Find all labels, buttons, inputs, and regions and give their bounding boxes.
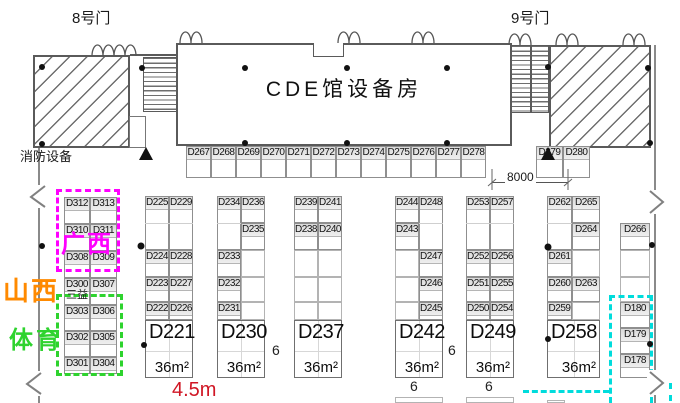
booth-label: D252 bbox=[467, 251, 489, 264]
empty-cell bbox=[395, 302, 419, 320]
booth-D264: D264 bbox=[572, 223, 600, 250]
booth-D273: D273 bbox=[336, 146, 361, 178]
booth-label: D234 bbox=[218, 197, 240, 210]
corridor-width-label: 6 bbox=[448, 342, 456, 358]
booth-D231: D231 bbox=[217, 302, 241, 320]
booth-label: D265 bbox=[573, 197, 599, 210]
booth-label: D275 bbox=[387, 147, 410, 160]
booth-label: D269 bbox=[237, 147, 260, 160]
booth-D241: D241 bbox=[318, 196, 342, 223]
booth-label: D263 bbox=[573, 278, 599, 291]
corridor-width-label: 6 bbox=[485, 378, 493, 394]
booth-D226: D226 bbox=[169, 302, 193, 320]
booth-label: D231 bbox=[218, 303, 240, 316]
booth-D247: D247 bbox=[419, 250, 443, 277]
empty-cell bbox=[318, 250, 342, 277]
booth-D263: D263 bbox=[572, 277, 600, 302]
booth-label: D266 bbox=[621, 224, 649, 237]
booth-label: D274 bbox=[362, 147, 385, 160]
empty-cell bbox=[395, 397, 443, 403]
booth-D279: D279 bbox=[536, 146, 563, 178]
empty-cell bbox=[395, 250, 419, 277]
empty-cell bbox=[620, 250, 650, 277]
booth-area: 36m² bbox=[405, 359, 439, 376]
highlight-line-cyan-horizontal bbox=[523, 390, 609, 393]
booth-D267: D267 bbox=[186, 146, 211, 178]
booth-D227: D227 bbox=[169, 277, 193, 302]
booth-label: D273 bbox=[337, 147, 360, 160]
booth-label: D250 bbox=[467, 303, 489, 316]
booth-label: D242 bbox=[399, 321, 445, 344]
booth-D275: D275 bbox=[386, 146, 411, 178]
booth-D254: D254 bbox=[490, 302, 514, 320]
region-label-guangxi: 广西 bbox=[61, 224, 113, 259]
booth-D228: D228 bbox=[169, 250, 193, 277]
booth-D271: D271 bbox=[286, 146, 311, 178]
fire-equipment-label: 消防设备 bbox=[20, 146, 72, 165]
empty-cell bbox=[294, 250, 318, 277]
booth-D233: D233 bbox=[217, 250, 241, 277]
booth-label: D249 bbox=[470, 321, 516, 344]
booth-label: D254 bbox=[491, 303, 513, 316]
booth-label: D272 bbox=[312, 147, 335, 160]
booth-D260: D260 bbox=[547, 277, 572, 302]
booth-label: D267 bbox=[187, 147, 210, 160]
cell-divider bbox=[145, 223, 193, 224]
booth-D266: D266 bbox=[620, 223, 650, 250]
booth-label: D264 bbox=[573, 224, 599, 237]
booth-D272: D272 bbox=[311, 146, 336, 178]
booth-label: D221 bbox=[149, 321, 195, 344]
booth-D255: D255 bbox=[490, 277, 514, 302]
dimension-value: 8000 bbox=[505, 170, 536, 184]
booth-D259: D259 bbox=[547, 302, 572, 320]
region-label-shanxi: 山西 bbox=[3, 271, 59, 308]
booth-D244: D244 bbox=[395, 196, 419, 223]
booth-D269: D269 bbox=[236, 146, 261, 178]
booth-label: D237 bbox=[298, 321, 344, 344]
company-label-sanyi: 三益 bbox=[66, 286, 88, 302]
booth-D232: D232 bbox=[217, 277, 241, 302]
booth-D258: D25836m² bbox=[547, 320, 600, 378]
booth-D265: D265 bbox=[572, 196, 600, 223]
booth-label: D278 bbox=[462, 147, 485, 160]
booth-label: D230 bbox=[221, 321, 267, 344]
booth-label: D255 bbox=[491, 278, 513, 291]
booth-D238: D238 bbox=[294, 223, 318, 250]
cell-divider bbox=[466, 223, 514, 224]
booth-label: D240 bbox=[319, 224, 341, 237]
highlight-line-cyan-vertical bbox=[669, 383, 672, 401]
booth-area: 36m² bbox=[304, 359, 338, 376]
booth-D223: D223 bbox=[145, 277, 169, 302]
booth-label: D247 bbox=[420, 251, 442, 264]
booth-label: D270 bbox=[262, 147, 285, 160]
booth-D251: D251 bbox=[466, 277, 490, 302]
booth-area: 36m² bbox=[227, 359, 261, 376]
booth-label: D228 bbox=[170, 251, 192, 264]
booth-D240: D240 bbox=[318, 223, 342, 250]
booth-label: D245 bbox=[420, 303, 442, 316]
booth-D278: D278 bbox=[461, 146, 486, 178]
booth-D250: D250 bbox=[466, 302, 490, 320]
booth-D222: D222 bbox=[145, 302, 169, 320]
cell-divider bbox=[217, 223, 241, 224]
booth-label: D225 bbox=[146, 197, 168, 210]
booth-label: D307 bbox=[91, 279, 116, 292]
aisle-width-label: 4.5m bbox=[172, 379, 216, 402]
booth-D239: D239 bbox=[294, 196, 318, 223]
highlight-box-sports bbox=[56, 294, 123, 376]
booth-label: D262 bbox=[548, 197, 571, 210]
region-label-sports: 体育 bbox=[9, 320, 63, 355]
empty-cell bbox=[572, 250, 600, 277]
gate-9-label: 9号门 bbox=[511, 7, 549, 28]
booth-label: D238 bbox=[295, 224, 317, 237]
booth-D249: D24936m² bbox=[466, 320, 514, 378]
empty-cell bbox=[241, 250, 265, 277]
booth-D246: D246 bbox=[419, 277, 443, 302]
booth-D221: D22136m² bbox=[145, 320, 193, 378]
booth-D261: D261 bbox=[547, 250, 572, 277]
booth-label: D256 bbox=[491, 251, 513, 264]
empty-cell bbox=[395, 277, 419, 302]
booth-label: D235 bbox=[242, 224, 264, 237]
booth-label: D268 bbox=[212, 147, 235, 160]
gate-8-label: 8号门 bbox=[72, 7, 110, 28]
empty-cell bbox=[241, 302, 265, 320]
booth-label: D222 bbox=[146, 303, 168, 316]
booth-label: D243 bbox=[396, 224, 418, 237]
booth-area: 36m² bbox=[155, 359, 189, 376]
empty-cell bbox=[294, 277, 318, 302]
highlight-box-d178-d180 bbox=[609, 295, 653, 403]
booth-label: D223 bbox=[146, 278, 168, 291]
booth-label: D253 bbox=[467, 197, 489, 210]
booth-D280: D280 bbox=[563, 146, 590, 178]
booth-label: D226 bbox=[170, 303, 192, 316]
empty-cell bbox=[572, 302, 600, 320]
booth-D274: D274 bbox=[361, 146, 386, 178]
booth-D242: D24236m² bbox=[395, 320, 443, 378]
booth-label: D258 bbox=[551, 321, 597, 344]
booth-label: D279 bbox=[537, 147, 562, 160]
booth-label: D271 bbox=[287, 147, 310, 160]
booth-label: D227 bbox=[170, 278, 192, 291]
corridor-width-label: 6 bbox=[272, 342, 280, 358]
booth-label: D239 bbox=[295, 197, 317, 210]
booth-D224: D224 bbox=[145, 250, 169, 277]
booth-D230: D23036m² bbox=[217, 320, 265, 378]
booth-D237: D23736m² bbox=[294, 320, 342, 378]
cell-divider bbox=[419, 223, 443, 224]
booth-label: D248 bbox=[420, 197, 442, 210]
booth-area: 36m² bbox=[476, 359, 510, 376]
booth-label: D251 bbox=[467, 278, 489, 291]
booth-label: D257 bbox=[491, 197, 513, 210]
booth-label: D280 bbox=[564, 147, 589, 160]
booth-label: D276 bbox=[412, 147, 435, 160]
empty-cell bbox=[294, 302, 318, 320]
booth-D235: D235 bbox=[241, 223, 265, 250]
booth-D256: D256 bbox=[490, 250, 514, 277]
booth-D243: D243 bbox=[395, 223, 419, 250]
booth-label: D232 bbox=[218, 278, 240, 291]
booth-label: D233 bbox=[218, 251, 240, 264]
corridor-width-label: 6 bbox=[410, 378, 418, 394]
empty-cell bbox=[318, 302, 342, 320]
booth-label: D224 bbox=[146, 251, 168, 264]
booth-label: D261 bbox=[548, 251, 571, 264]
booth-label: D236 bbox=[242, 197, 264, 210]
empty-cell bbox=[318, 277, 342, 302]
booth-label: D259 bbox=[548, 303, 571, 316]
booth-label: D241 bbox=[319, 197, 341, 210]
booth-area: 36m² bbox=[562, 359, 596, 376]
booth-D245: D245 bbox=[419, 302, 443, 320]
empty-cell bbox=[241, 277, 265, 302]
booth-label: D260 bbox=[548, 278, 571, 291]
cell-divider bbox=[547, 223, 572, 224]
exhibition-floor-plan: CDE馆设备房 D267D268D269D270D271D272D273D274… bbox=[0, 0, 680, 403]
booth-D276: D276 bbox=[411, 146, 436, 178]
booth-D252: D252 bbox=[466, 250, 490, 277]
booth-label: D244 bbox=[396, 197, 418, 210]
booth-label: D246 bbox=[420, 278, 442, 291]
empty-cell bbox=[466, 397, 514, 403]
booth-D268: D268 bbox=[211, 146, 236, 178]
booth-D277: D277 bbox=[436, 146, 461, 178]
booth-D270: D270 bbox=[261, 146, 286, 178]
booth-label: D229 bbox=[170, 197, 192, 210]
booth-label: D277 bbox=[437, 147, 460, 160]
booth-D236: D236 bbox=[241, 196, 265, 223]
